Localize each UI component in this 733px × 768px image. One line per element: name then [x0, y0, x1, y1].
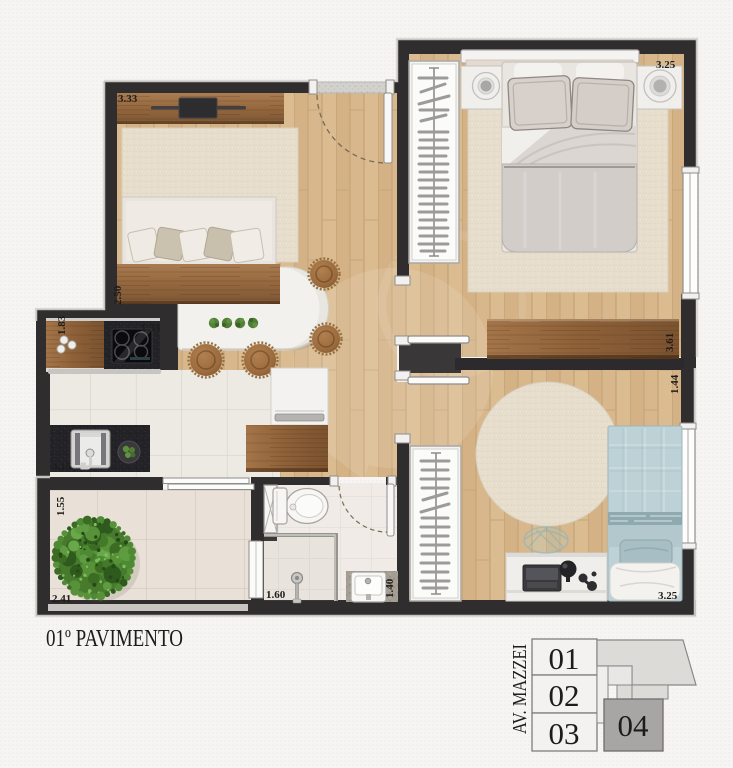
- svg-text:1.40: 1.40: [384, 578, 396, 598]
- svg-text:3.61: 3.61: [664, 333, 676, 352]
- svg-text:1.44: 1.44: [669, 374, 681, 394]
- svg-text:2.50: 2.50: [112, 285, 124, 305]
- svg-text:1.55: 1.55: [55, 496, 67, 516]
- svg-text:1.60: 1.60: [266, 589, 286, 601]
- svg-text:3.25: 3.25: [658, 590, 678, 602]
- svg-text:1.83: 1.83: [56, 315, 68, 335]
- svg-text:01º PAVIMENTO: 01º PAVIMENTO: [46, 626, 183, 652]
- svg-text:02: 02: [549, 678, 580, 713]
- svg-text:01: 01: [549, 641, 580, 676]
- svg-text:1.33: 1.33: [141, 322, 161, 334]
- svg-text:4.15: 4.15: [52, 461, 72, 473]
- svg-text:AV. MAZZEI: AV. MAZZEI: [509, 644, 531, 734]
- svg-text:3.33: 3.33: [118, 93, 138, 105]
- svg-text:2.41: 2.41: [52, 593, 71, 605]
- svg-text:3.25: 3.25: [656, 59, 676, 71]
- svg-text:03: 03: [549, 716, 580, 751]
- svg-text:04: 04: [618, 708, 650, 743]
